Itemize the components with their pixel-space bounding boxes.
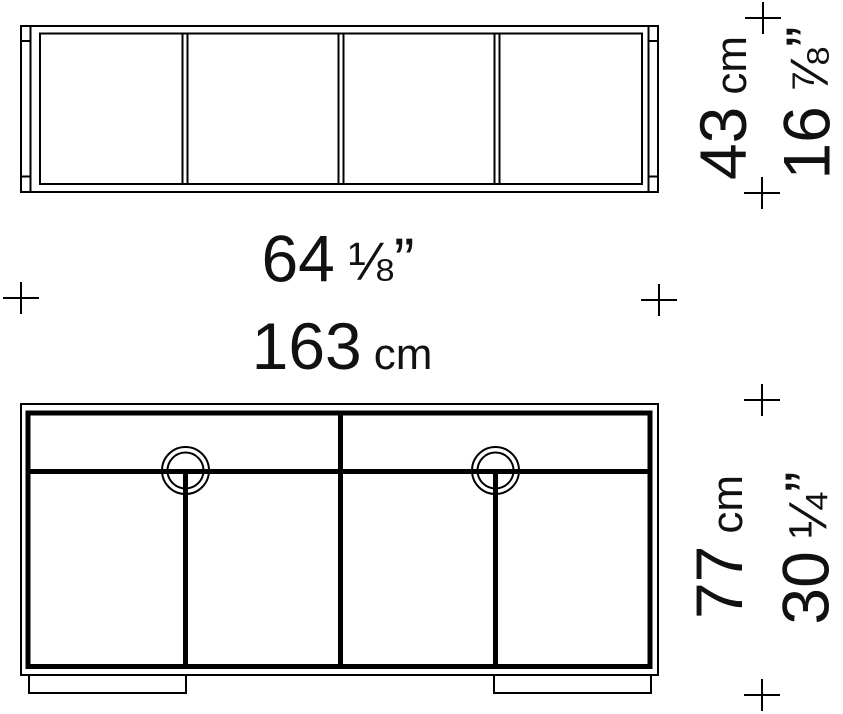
height-cm-unit: cm xyxy=(703,475,752,534)
width-inches-value: 64 xyxy=(261,222,334,296)
furniture-dimension-drawing: 64⅛” 163cm 43cm 16⅞” 77cm 30¼” xyxy=(0,0,843,714)
width-inches-label: 64⅛” xyxy=(261,226,414,293)
registration-cross-depth-bottom xyxy=(744,177,780,209)
registration-cross-width-left xyxy=(3,282,39,314)
registration-cross-height-top xyxy=(744,384,780,416)
height-cm-label: 77cm xyxy=(686,475,752,619)
top-view xyxy=(21,26,658,192)
height-inches-fraction: ¼ xyxy=(778,493,838,538)
width-cm-unit: cm xyxy=(374,330,433,379)
width-inches-fraction: ⅛ xyxy=(348,231,393,291)
registration-cross-height-bottom xyxy=(744,679,780,711)
front-view xyxy=(21,404,658,693)
depth-cm-value: 43 xyxy=(686,107,760,180)
height-inches-label: 30¼” xyxy=(773,471,840,624)
height-inches-value: 30 xyxy=(769,551,843,624)
depth-inches-value: 16 xyxy=(770,106,843,179)
width-inch-mark: ” xyxy=(394,227,415,296)
width-cm-value: 163 xyxy=(252,309,362,383)
foot-left xyxy=(29,675,186,693)
depth-inches-fraction: ⅞ xyxy=(779,48,839,93)
top-view-divider-2 xyxy=(339,34,344,185)
depth-inches-label: 16⅞” xyxy=(774,26,841,179)
height-cm-value: 77 xyxy=(682,546,756,619)
width-cm-label: 163cm xyxy=(252,313,433,379)
top-view-divider-1 xyxy=(183,34,188,185)
foot-right xyxy=(494,675,651,693)
height-inch-mark: ” xyxy=(774,471,843,492)
depth-inch-mark: ” xyxy=(775,26,843,47)
depth-cm-unit: cm xyxy=(707,36,756,95)
depth-cm-label: 43cm xyxy=(690,36,756,180)
registration-cross-width-right xyxy=(641,284,677,316)
top-view-divider-3 xyxy=(495,34,500,185)
top-view-top-panel xyxy=(40,34,642,185)
